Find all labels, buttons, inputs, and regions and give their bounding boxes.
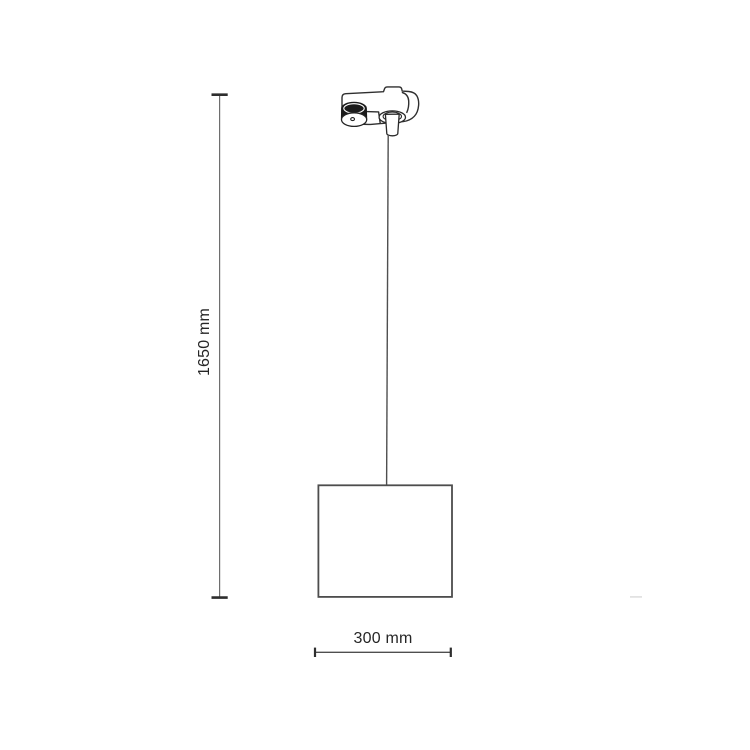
lamp-shade xyxy=(318,485,452,597)
cable-grip-cylinder xyxy=(385,114,399,136)
suspension-cable xyxy=(387,135,389,486)
lamp-dimension-diagram: 1650 mm 300 mm xyxy=(0,0,750,750)
track-adapter xyxy=(341,87,418,136)
width-dimension-label: 300 mm xyxy=(354,630,413,648)
adapter-knob-hole xyxy=(351,118,355,121)
width-dimension xyxy=(315,648,451,657)
height-dimension-label: 1650 mm xyxy=(196,308,214,376)
faint-artifact-dash xyxy=(630,596,642,598)
